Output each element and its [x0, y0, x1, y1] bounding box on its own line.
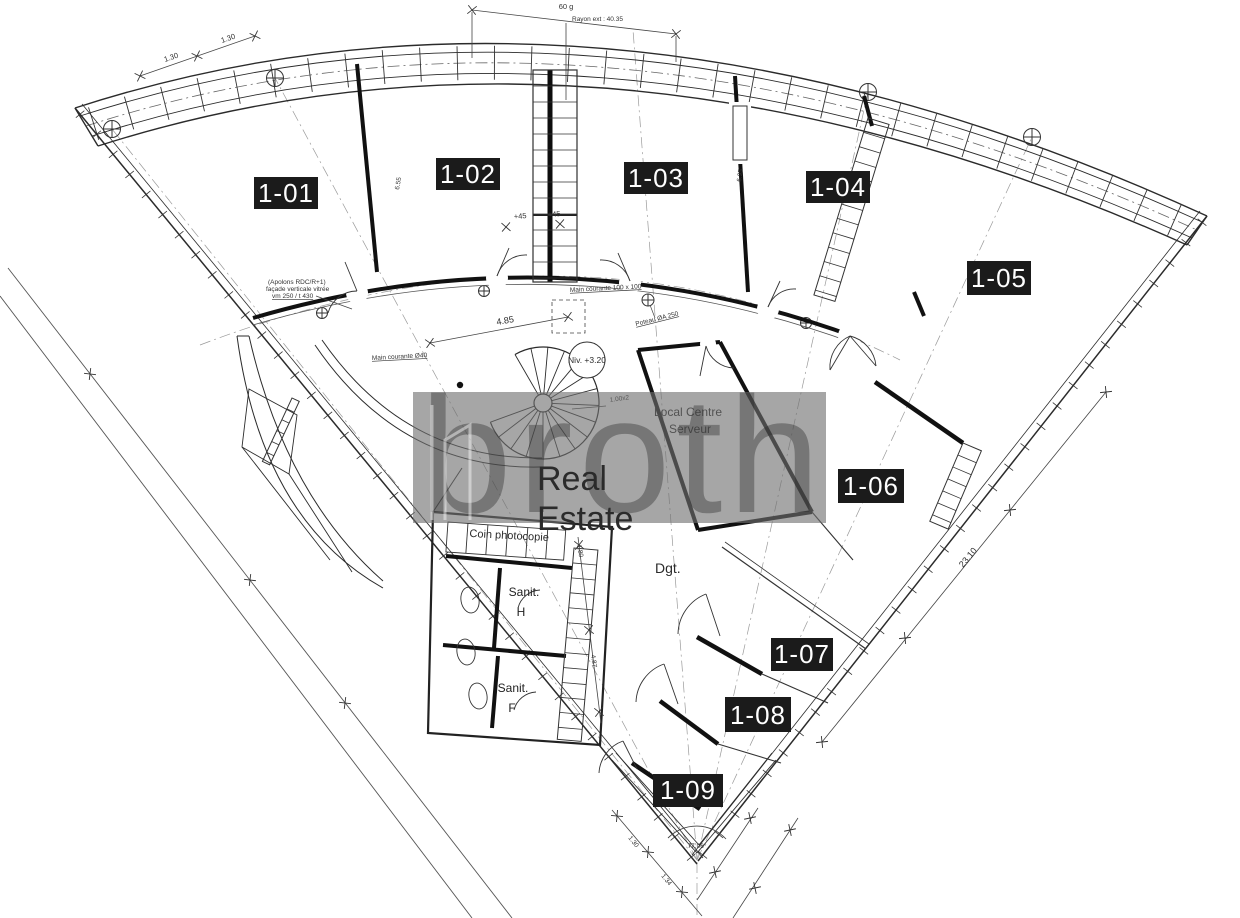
room-label-1-01: 1-01	[254, 177, 318, 209]
svg-text:1-07: 1-07	[774, 639, 830, 669]
dim-60g: 60 g	[559, 2, 574, 11]
sanitary-f-label-2: F	[508, 701, 515, 715]
watermark: brother Real Estate	[413, 363, 985, 547]
dim-134: 1.34	[659, 873, 673, 888]
svg-text:1-02: 1-02	[440, 159, 496, 189]
room-label-1-02: 1-02	[436, 158, 500, 190]
sanitary-f-label-1: Sanit.	[498, 681, 529, 695]
dim-2310: 23.10	[957, 546, 979, 570]
level-mark-label: Niv. +3.20	[568, 355, 606, 365]
note-handrail: Main courante Ø40	[372, 352, 428, 362]
watermark-label-1: Real	[537, 460, 607, 498]
level-mark: Niv. +3.20	[568, 342, 606, 378]
room-label-1-07: 1-07	[771, 638, 833, 671]
dim-plus45-a: +45	[514, 211, 527, 221]
note-rayon: Rayon ext : 40.35	[572, 16, 623, 23]
note-facade-2: façade verticale vitrée	[266, 286, 330, 293]
room-partitions	[357, 64, 963, 443]
room-label-1-03: 1-03	[624, 162, 688, 194]
watermark-brand: brother	[420, 363, 985, 547]
sanitary-m-label-2: H	[517, 605, 526, 619]
dim-130-a: 1.30	[163, 51, 180, 64]
watermark-label-2: Estate	[537, 500, 633, 538]
lower-room-doors	[599, 594, 720, 773]
sanitary-m-label-1: Sanit.	[509, 585, 540, 599]
room-label-1-04: 1-04	[806, 171, 870, 203]
crescent-balcony	[237, 336, 383, 588]
facade-mullion-ticks	[89, 46, 1182, 236]
svg-text:1-03: 1-03	[628, 163, 684, 193]
svg-text:1-08: 1-08	[730, 700, 786, 730]
dim-485: 4.85	[496, 314, 515, 327]
dim-plus45-b: +45	[548, 209, 561, 219]
door-panel	[733, 106, 747, 160]
dim-487: 4.87	[589, 654, 598, 668]
dim-apex-angle: 77.06°	[688, 842, 707, 850]
note-facade-3: vm 250 / t 430	[272, 293, 314, 300]
dim-130-c: 1.30	[626, 835, 640, 850]
svg-text:1-04: 1-04	[810, 172, 866, 202]
room-label-1-05: 1-05	[967, 261, 1031, 295]
room-label-1-09: 1-09	[653, 774, 723, 807]
svg-text:1-05: 1-05	[971, 263, 1027, 293]
room-label-1-08: 1-08	[725, 697, 791, 732]
svg-text:1-01: 1-01	[258, 178, 314, 208]
note-column: Poteau ØA 250	[635, 310, 680, 328]
room-label-1-06: 1-06	[838, 469, 904, 503]
dim-695: 6.95	[736, 168, 745, 182]
server-door-gap	[700, 336, 716, 352]
svg-text:1-09: 1-09	[660, 775, 716, 805]
floor-plan-drawing: Niv. +3.20 Local Centre Serveur	[0, 0, 1240, 918]
dim-180: 1.80	[575, 544, 584, 558]
svg-text:1-06: 1-06	[843, 471, 899, 501]
lower-room-walls	[632, 512, 869, 809]
column-dot	[457, 382, 463, 388]
note-facade-1: (Apolons RDC/R+1)	[268, 279, 326, 286]
dim-655: 6.55	[394, 176, 403, 190]
corridor-label: Dgt.	[655, 560, 681, 576]
